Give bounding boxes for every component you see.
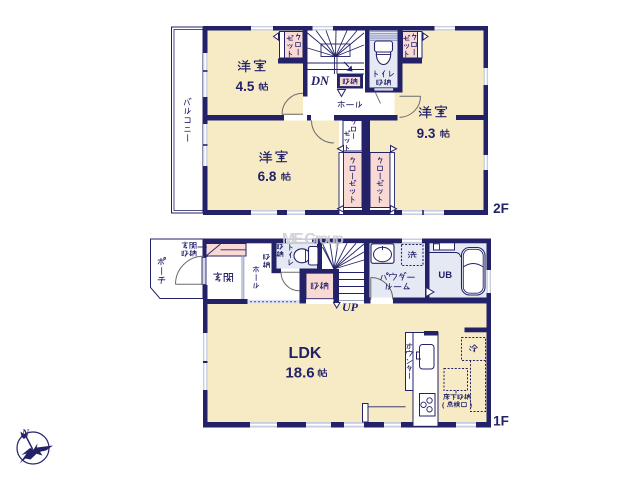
svg-text:): ) [470,402,472,409]
svg-text:N: N [21,429,30,440]
svg-text:18.6: 18.6 [285,365,314,382]
svg-text:4.5: 4.5 [236,79,255,94]
svg-text:6.8: 6.8 [258,169,277,184]
svg-text:UB: UB [438,270,452,281]
svg-text:1F: 1F [493,414,509,429]
svg-text:2F: 2F [493,201,509,216]
svg-text:ME Group: ME Group [282,231,344,248]
svg-text:UP: UP [342,300,359,314]
svg-text:9.3: 9.3 [417,126,436,141]
svg-text:DN: DN [310,74,330,88]
svg-text:LDK: LDK [289,345,322,362]
